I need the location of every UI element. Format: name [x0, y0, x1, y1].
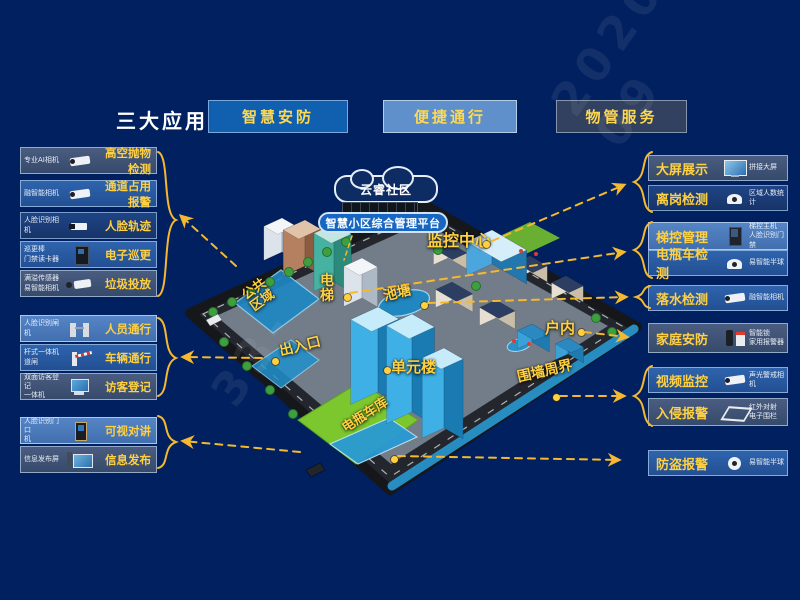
app-button-1[interactable]: 智慧安防 — [208, 100, 348, 133]
turret-camera-icon — [719, 452, 749, 474]
feature-label: 通道占用报警 — [94, 178, 156, 210]
device-label: 区域人数统计 — [749, 189, 787, 207]
map-zone-label-jk: 监控中心 — [427, 232, 491, 250]
map-zone-label-ct: 池塘 — [382, 283, 413, 305]
device-label: 拼接大屏 — [749, 163, 787, 172]
device-label: 易智能半球 — [749, 458, 787, 467]
right-panel-item[interactable]: 电瓶车检测易智能半球 — [648, 250, 788, 276]
device-label: 人脸识别闸机 — [21, 319, 64, 337]
left-panel-item[interactable]: 满溢传感器 易智能相机垃圾投放 — [20, 270, 157, 297]
device-label: 融智能相机 — [749, 293, 787, 302]
map-zone-label-crk: 出入口 — [278, 335, 322, 360]
right-panel-item[interactable]: 离岗检测区域人数统计 — [648, 185, 788, 211]
smart-lock-icon — [719, 327, 749, 349]
feature-label: 入侵报警 — [649, 403, 719, 422]
feature-label: 大屏展示 — [649, 159, 719, 178]
right-panel-item[interactable]: 落水检测融智能相机 — [648, 285, 788, 311]
bullet-camera-icon — [64, 150, 94, 172]
left-panel-item[interactable]: 专业AI相机高空抛物检测 — [20, 147, 157, 174]
device-label: 杆式一体机 道闸 — [21, 348, 64, 366]
zone-marker-dot — [421, 302, 428, 309]
right-panel-item[interactable]: 入侵报警红外对射 电子围栏 — [648, 398, 788, 426]
feature-label: 家庭安防 — [649, 329, 719, 348]
left-panel-item[interactable]: 双面访客登记 一体机访客登记 — [20, 373, 157, 400]
sensor-camera-icon — [64, 273, 94, 295]
access-panel-icon — [719, 225, 749, 247]
device-label: 融智能相机 — [21, 189, 64, 198]
right-panel-item[interactable]: 防盗报警易智能半球 — [648, 450, 788, 476]
right-panel-item[interactable]: 大屏展示拼接大屏 — [648, 155, 788, 181]
app-button-2[interactable]: 便捷通行 — [383, 100, 517, 133]
device-label: 满溢传感器 易智能相机 — [21, 274, 64, 292]
left-panel-item[interactable]: 人脸识别门口 机可视对讲 — [20, 417, 157, 444]
feature-label: 人员通行 — [94, 321, 156, 337]
bullet-camera-icon — [719, 287, 749, 309]
feature-label: 防盗报警 — [649, 454, 719, 473]
video-wall-icon — [719, 157, 749, 179]
device-label: 人脸识别门口 机 — [21, 417, 64, 444]
map-zone-label-gg: 公共 区域 — [240, 277, 278, 315]
device-label: 专业AI相机 — [21, 156, 64, 165]
zone-marker-dot — [384, 367, 391, 374]
turnstile-icon — [64, 318, 94, 340]
device-label: 人脸识别相机 — [21, 216, 64, 234]
feature-label: 高空抛物检测 — [94, 145, 156, 177]
left-panel-item[interactable]: 杆式一体机 道闸车辆通行 — [20, 344, 157, 371]
feature-label: 访客登记 — [94, 379, 156, 395]
cloud-community-label: 云睿社区 — [334, 175, 438, 203]
right-panel-item[interactable]: 视频监控声光警戒相机 — [648, 367, 788, 393]
device-label: 双面访客登记 一体机 — [21, 373, 64, 400]
device-label: 信息发布屏 — [21, 455, 64, 464]
right-panel-item[interactable]: 家庭安防智能锁 家用报警器 — [648, 323, 788, 353]
dome-camera-icon — [719, 187, 749, 209]
device-label: 巡更棒 门禁读卡器 — [21, 245, 64, 263]
feature-label: 信息发布 — [94, 452, 156, 468]
device-label: 声光警戒相机 — [749, 371, 787, 389]
feature-label: 可视对讲 — [94, 423, 156, 439]
zone-marker-dot — [344, 294, 351, 301]
map-zone-label-hn: 户内 — [545, 320, 575, 337]
zone-marker-dot — [578, 329, 585, 336]
feature-label: 离岗检测 — [649, 189, 719, 208]
barrier-gate-icon — [64, 347, 94, 369]
left-panel-item[interactable]: 信息发布屏信息发布 — [20, 446, 157, 473]
page-title: 三大应用 — [116, 105, 208, 134]
left-panel-item[interactable]: 人脸识别相机人脸轨迹 — [20, 212, 157, 239]
feature-label: 视频监控 — [649, 371, 719, 390]
left-panel-item[interactable]: 融智能相机通道占用报警 — [20, 180, 157, 207]
device-label: 梯控主机 人脸识别门禁 — [749, 222, 787, 249]
left-panel-item[interactable]: 巡更棒 门禁读卡器电子巡更 — [20, 241, 157, 268]
zone-marker-dot — [483, 241, 490, 248]
bullet-camera-icon — [64, 183, 94, 205]
visitor-terminal-icon — [64, 376, 94, 398]
fence-icon — [719, 401, 749, 423]
info-screen-icon — [64, 449, 94, 471]
zone-marker-dot — [391, 456, 398, 463]
feature-label: 垃圾投放 — [94, 276, 156, 292]
zone-marker-dot — [272, 358, 279, 365]
device-label: 智能锁 家用报警器 — [749, 329, 787, 347]
map-zone-label-dp: 电瓶车库 — [340, 396, 391, 436]
feature-label: 梯控管理 — [649, 227, 719, 246]
map-zone-label-dt: 电梯 — [320, 274, 336, 305]
left-panel-item[interactable]: 人脸识别闸机人员通行 — [20, 315, 157, 342]
smart-community-poster: 三大应用 智慧安防便捷通行物管服务 专业AI相机高空抛物检测融智能相机通道占用报… — [0, 0, 800, 600]
map-zone-label-dyl: 单元楼 — [391, 359, 436, 376]
feature-label: 人脸轨迹 — [94, 218, 156, 234]
watermark-text: 2020-09 — [540, 0, 778, 157]
door-station-icon — [64, 420, 94, 442]
app-button-3[interactable]: 物管服务 — [556, 100, 687, 133]
card-reader-icon — [64, 244, 94, 266]
bullet-camera-icon — [719, 369, 749, 391]
zone-marker-dot — [553, 394, 560, 401]
map-zone-label-wq: 围墙周界 — [516, 358, 574, 386]
feature-label: 车辆通行 — [94, 350, 156, 366]
dome-camera-icon — [719, 252, 749, 274]
feature-label: 落水检测 — [649, 289, 719, 308]
feature-label: 电子巡更 — [94, 247, 156, 263]
platform-label: 智慧小区综合管理平台 — [318, 212, 448, 233]
feature-label: 电瓶车检测 — [649, 244, 719, 282]
box-camera-icon — [64, 215, 94, 237]
device-label: 红外对射 电子围栏 — [749, 403, 787, 421]
device-label: 易智能半球 — [749, 258, 787, 267]
